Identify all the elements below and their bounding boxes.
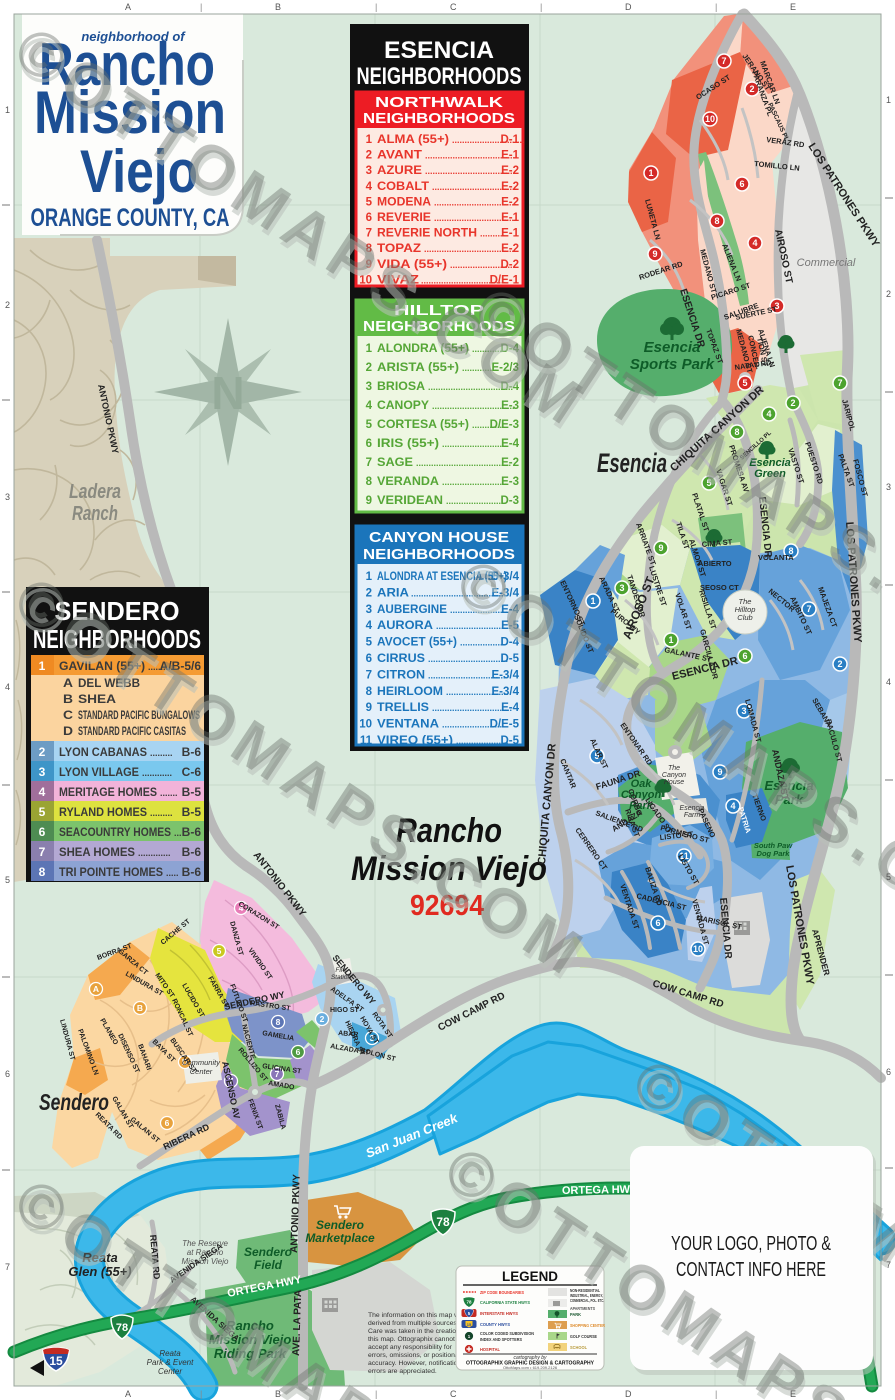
svg-text:ABIERTO: ABIERTO <box>698 559 732 568</box>
svg-text:2: 2 <box>790 398 795 408</box>
svg-text:TRI POINTE HOMES: TRI POINTE HOMES <box>59 865 163 879</box>
svg-text:|: | <box>200 1389 202 1399</box>
svg-text:MODENA: MODENA <box>377 196 431 208</box>
svg-text:errors, omissions, or posit: errors, omissions, or positional <box>368 1352 461 1359</box>
svg-text:A: A <box>63 676 73 690</box>
svg-text:C: C <box>63 708 73 722</box>
svg-text:SEOSO CT: SEOSO CT <box>700 583 739 592</box>
svg-text:15: 15 <box>49 1354 63 1368</box>
svg-text:7: 7 <box>837 378 842 388</box>
svg-text:E-1: E-1 <box>501 228 520 240</box>
svg-text:Esencia: Esencia <box>644 339 701 356</box>
svg-text:this map. Ottographix canno: this map. Ottographix cannot <box>368 1336 455 1343</box>
svg-text:APARTMENTS: APARTMENTS <box>570 1306 595 1311</box>
svg-text:4: 4 <box>366 620 373 632</box>
svg-text:B-5: B-5 <box>182 805 202 819</box>
svg-text:E-1: E-1 <box>501 212 520 224</box>
svg-text:8: 8 <box>276 1017 281 1027</box>
svg-text:D-5: D-5 <box>500 735 519 747</box>
svg-text:7: 7 <box>5 1262 10 1272</box>
svg-text:Club: Club <box>737 613 752 622</box>
svg-text:3: 3 <box>5 492 10 502</box>
svg-text:Field: Field <box>254 1258 283 1272</box>
svg-text:The: The <box>668 765 680 772</box>
svg-text:9: 9 <box>366 702 372 714</box>
svg-text:2: 2 <box>749 84 754 94</box>
svg-text:B-5: B-5 <box>182 785 202 799</box>
svg-text:Ladera: Ladera <box>69 481 121 503</box>
svg-text:10: 10 <box>359 719 372 731</box>
svg-text:AZURE: AZURE <box>377 165 422 177</box>
svg-text:C-6: C-6 <box>182 765 202 779</box>
svg-text:VENTANA: VENTANA <box>377 719 439 731</box>
svg-text:|: | <box>200 2 202 12</box>
svg-text:COLOR CODED SUBDIVISION: COLOR CODED SUBDIVISION <box>480 1331 535 1336</box>
svg-text:..............................: ................................ <box>428 654 508 664</box>
svg-text:5: 5 <box>886 872 891 882</box>
svg-text:AUBERGINE: AUBERGINE <box>377 604 447 616</box>
svg-text:6: 6 <box>39 825 46 839</box>
svg-text:5: 5 <box>39 805 46 819</box>
svg-text:4: 4 <box>766 409 771 419</box>
svg-text:6: 6 <box>655 918 660 928</box>
svg-text:Sendero: Sendero <box>244 1245 292 1259</box>
svg-text:2: 2 <box>837 659 842 669</box>
svg-text:5: 5 <box>742 378 747 388</box>
svg-text:D/E-3: D/E-3 <box>490 419 519 431</box>
svg-text:errors are appreciated.: errors are appreciated. <box>368 1368 437 1375</box>
svg-text:MERITAGE HOMES: MERITAGE HOMES <box>59 785 157 799</box>
svg-text:3: 3 <box>39 765 46 779</box>
svg-text:6: 6 <box>366 438 372 450</box>
svg-text:REVERIE: REVERIE <box>377 212 431 224</box>
svg-text:B: B <box>137 1003 143 1013</box>
svg-text:1: 1 <box>886 95 891 105</box>
svg-text:|: | <box>540 2 542 12</box>
svg-text:E-2: E-2 <box>501 165 519 177</box>
svg-text:CALIFORNIA STATE HWYS: CALIFORNIA STATE HWYS <box>480 1300 530 1305</box>
svg-text:.............: ............. <box>138 848 171 858</box>
svg-text:11: 11 <box>360 735 373 747</box>
svg-text:E: E <box>790 2 796 12</box>
svg-text:|: | <box>375 2 377 12</box>
svg-text:HIGO ST: HIGO ST <box>330 1007 360 1014</box>
svg-text:Sendero: Sendero <box>316 1218 364 1232</box>
svg-text:BRIOSA: BRIOSA <box>377 381 425 393</box>
svg-text:..........................: .......................... <box>442 439 507 449</box>
svg-text:2: 2 <box>366 150 372 162</box>
svg-text:4: 4 <box>39 785 46 799</box>
svg-text:5: 5 <box>5 875 10 885</box>
svg-text:Ranch: Ranch <box>72 503 118 525</box>
svg-text:1: 1 <box>668 635 673 645</box>
svg-text:6: 6 <box>296 1047 301 1057</box>
svg-text:1: 1 <box>39 659 46 673</box>
svg-text:9: 9 <box>658 543 663 553</box>
svg-text:5: 5 <box>366 419 373 431</box>
svg-text:|: | <box>540 1389 542 1399</box>
svg-text:LYON VILLAGE: LYON VILLAGE <box>59 765 139 779</box>
svg-text:ORANGE COUNTY, CA: ORANGE COUNTY, CA <box>31 204 230 232</box>
svg-text:..............................: ................................ <box>432 703 512 713</box>
svg-text:AVOCET (55+): AVOCET (55+) <box>377 637 457 649</box>
svg-text:OttoMaps.com • 619.209.2126: OttoMaps.com • 619.209.2126 <box>503 1365 558 1370</box>
svg-text:GOLF COURSE: GOLF COURSE <box>570 1334 597 1339</box>
svg-text:D-2: D-2 <box>500 259 519 271</box>
svg-text:6: 6 <box>742 651 747 661</box>
svg-text:SEACOUNTRY HOMES: SEACOUNTRY HOMES <box>59 825 171 839</box>
svg-text:SCHOOL: SCHOOL <box>570 1345 587 1350</box>
svg-text:PARK: PARK <box>570 1312 581 1317</box>
svg-text:NEIGHBORHOODS: NEIGHBORHOODS <box>357 63 522 90</box>
svg-text:2: 2 <box>886 289 891 299</box>
svg-text:4: 4 <box>366 181 373 193</box>
svg-text:1: 1 <box>366 343 373 355</box>
svg-text:3: 3 <box>366 165 372 177</box>
svg-text:7: 7 <box>806 604 811 614</box>
svg-text:SHOPPING CENTER: SHOPPING CENTER <box>570 1323 605 1328</box>
svg-text:8: 8 <box>39 865 46 879</box>
svg-text:Care was taken in the creation: Care was taken in the creation of <box>368 1328 467 1335</box>
svg-text:B: B <box>275 2 281 12</box>
svg-text:COBALT: COBALT <box>377 181 429 193</box>
svg-text:CORTESA (55+): CORTESA (55+) <box>377 419 469 431</box>
svg-text:D-1: D-1 <box>500 134 519 146</box>
svg-text:D-3: D-3 <box>500 495 519 507</box>
svg-text:RYLAND HOMES: RYLAND HOMES <box>59 805 147 819</box>
svg-text:1: 1 <box>5 105 10 115</box>
svg-text:A: A <box>125 1389 131 1399</box>
svg-text:CONTACT INFO HERE: CONTACT INFO HERE <box>676 1259 826 1281</box>
svg-text:ARIA: ARIA <box>377 587 409 599</box>
svg-text:.....: ..... <box>166 868 179 878</box>
svg-text:E-3/4: E-3/4 <box>492 669 520 681</box>
svg-text:B-6: B-6 <box>182 845 202 859</box>
svg-text:Commercial: Commercial <box>797 257 856 269</box>
svg-text:4: 4 <box>752 238 757 248</box>
svg-text:B-6: B-6 <box>182 865 202 879</box>
svg-text:2: 2 <box>366 587 372 599</box>
svg-text:VOLANTA: VOLANTA <box>758 553 794 562</box>
svg-text:Reata: Reata <box>159 1349 181 1358</box>
svg-text:6: 6 <box>366 653 372 665</box>
svg-text:4: 4 <box>5 682 10 692</box>
svg-text:3: 3 <box>366 381 372 393</box>
svg-text:|: | <box>375 1389 377 1399</box>
svg-text:INTERSTATE HWYS: INTERSTATE HWYS <box>480 1311 518 1316</box>
svg-text:1: 1 <box>366 134 373 146</box>
svg-text:CIRRUS: CIRRUS <box>377 653 425 665</box>
svg-text:INDEX AND SPOTTERS: INDEX AND SPOTTERS <box>480 1337 522 1342</box>
svg-text:E-2: E-2 <box>501 181 519 193</box>
svg-text:ZIP CODE BOUNDARIES: ZIP CODE BOUNDARIES <box>480 1290 524 1295</box>
svg-text:VERIDEAN: VERIDEAN <box>377 495 443 507</box>
svg-text:Park & Event: Park & Event <box>147 1358 194 1367</box>
svg-text:7: 7 <box>366 669 372 681</box>
svg-text:ORTEGA HWY: ORTEGA HWY <box>562 1184 638 1197</box>
svg-text:E-2: E-2 <box>501 196 519 208</box>
svg-text:3: 3 <box>619 583 624 593</box>
svg-text:SHEA HOMES: SHEA HOMES <box>59 845 135 859</box>
svg-text:ESENCIA: ESENCIA <box>384 37 494 64</box>
svg-text:VERANDA: VERANDA <box>377 476 439 488</box>
svg-text:.......: ....... <box>160 788 178 798</box>
svg-text:10: 10 <box>705 114 715 124</box>
svg-text:derived from multiple sources.: derived from multiple sources. <box>368 1320 459 1327</box>
svg-text:E-3: E-3 <box>501 476 519 488</box>
svg-text:E-4: E-4 <box>501 438 520 450</box>
svg-text:The information on this map wa: The information on this map was <box>368 1312 467 1319</box>
svg-text:C: C <box>450 2 457 12</box>
svg-text:78: 78 <box>436 1215 450 1229</box>
svg-text:4: 4 <box>366 400 373 412</box>
svg-text:7: 7 <box>721 56 726 66</box>
svg-text:2: 2 <box>320 1014 325 1024</box>
svg-text:COUNTY HWYS: COUNTY HWYS <box>480 1322 510 1327</box>
svg-text:B-6: B-6 <box>182 825 202 839</box>
svg-text:NORTHWALK: NORTHWALK <box>375 94 503 111</box>
svg-text:B: B <box>275 1389 281 1399</box>
svg-text:|: | <box>715 1389 717 1399</box>
svg-text:E-1: E-1 <box>501 150 520 162</box>
svg-text:HEIRLOOM: HEIRLOOM <box>377 686 443 698</box>
svg-text:E: E <box>790 1389 796 1399</box>
svg-text:E-2: E-2 <box>501 457 519 469</box>
svg-text:.........: ......... <box>150 808 173 818</box>
svg-text:2: 2 <box>366 362 372 374</box>
svg-text:8: 8 <box>366 476 373 488</box>
svg-text:7: 7 <box>886 1260 891 1270</box>
svg-text:E-2: E-2 <box>501 243 519 255</box>
svg-text:...: ... <box>174 828 182 838</box>
svg-text:7: 7 <box>39 845 46 859</box>
svg-text:LYON CABANAS: LYON CABANAS <box>59 745 147 759</box>
svg-text:10: 10 <box>693 944 703 954</box>
svg-text:78: 78 <box>116 1322 128 1334</box>
svg-text:accuracy. However, notificatio: accuracy. However, notification of <box>368 1360 469 1367</box>
svg-text:4: 4 <box>886 677 891 687</box>
svg-text:6: 6 <box>886 1067 891 1077</box>
svg-text:D: D <box>625 2 632 12</box>
svg-text:6: 6 <box>739 179 744 189</box>
svg-text:2: 2 <box>5 300 10 310</box>
svg-text:6: 6 <box>5 1069 10 1079</box>
svg-text:E-3/4: E-3/4 <box>492 686 520 698</box>
svg-text:House: House <box>664 779 684 786</box>
svg-text:8: 8 <box>714 216 719 226</box>
svg-text:5: 5 <box>217 946 222 956</box>
svg-text:D/E-5: D/E-5 <box>490 719 520 731</box>
svg-text:3: 3 <box>366 604 372 616</box>
svg-text:.........: ......... <box>150 748 173 758</box>
svg-text:VIREO (55+): VIREO (55+) <box>377 735 453 747</box>
svg-text:C: C <box>450 1389 457 1399</box>
svg-text:........................: ........................ <box>446 496 506 506</box>
svg-text:Center: Center <box>158 1367 182 1376</box>
svg-text:6: 6 <box>165 1118 170 1128</box>
svg-text:9: 9 <box>652 249 657 259</box>
svg-text:3: 3 <box>886 482 891 492</box>
svg-text:..........................: .......................... <box>442 477 507 487</box>
svg-text:1: 1 <box>366 571 373 583</box>
svg-text:15: 15 <box>467 1322 472 1327</box>
svg-text:1: 1 <box>648 168 653 178</box>
svg-text:Marketplace: Marketplace <box>305 1231 375 1245</box>
svg-text:accept any responsibility f: accept any responsibility for <box>368 1344 453 1351</box>
svg-text:AVANT: AVANT <box>377 150 422 162</box>
svg-text:78: 78 <box>466 1300 472 1305</box>
svg-text:A: A <box>125 2 131 12</box>
svg-text:ALMA (55+): ALMA (55+) <box>377 134 449 146</box>
svg-text:..............................: ...................................... <box>416 458 511 468</box>
svg-text:AURORA: AURORA <box>377 620 433 632</box>
svg-text:A: A <box>93 984 99 994</box>
svg-text:CANOPY: CANOPY <box>377 400 429 412</box>
svg-text:TRELLIS: TRELLIS <box>377 702 429 714</box>
svg-text:............: ............ <box>142 768 172 778</box>
svg-text:N: N <box>211 367 244 419</box>
svg-text:6: 6 <box>366 212 372 224</box>
svg-text:NEIGHBORHOODS: NEIGHBORHOODS <box>363 110 515 127</box>
svg-text:Dog Park: Dog Park <box>757 849 791 858</box>
svg-text:7: 7 <box>366 457 372 469</box>
svg-text:D: D <box>625 1389 632 1399</box>
svg-text:CANYON HOUSE: CANYON HOUSE <box>369 529 509 546</box>
svg-text:2: 2 <box>39 745 46 759</box>
svg-text:9: 9 <box>366 495 372 507</box>
svg-text:1: 1 <box>590 596 595 606</box>
svg-text:Canyon: Canyon <box>662 772 686 779</box>
svg-text:IRIS (55+): IRIS (55+) <box>377 438 439 450</box>
svg-text:4: 4 <box>730 801 735 811</box>
svg-text:5: 5 <box>366 637 373 649</box>
svg-text:SAGE: SAGE <box>377 457 413 469</box>
svg-text:E-4: E-4 <box>501 702 520 714</box>
svg-text:B: B <box>63 692 73 706</box>
svg-text:HOSPITAL: HOSPITAL <box>480 1347 500 1352</box>
svg-text:8: 8 <box>366 686 373 698</box>
svg-text:YOUR LOGO, PHOTO &: YOUR LOGO, PHOTO & <box>671 1233 831 1255</box>
svg-text:5: 5 <box>366 196 373 208</box>
svg-text:CITRON: CITRON <box>377 669 425 681</box>
svg-text:D: D <box>63 724 73 738</box>
svg-text:REVERIE NORTH: REVERIE NORTH <box>377 228 477 240</box>
svg-text:|: | <box>715 2 717 12</box>
